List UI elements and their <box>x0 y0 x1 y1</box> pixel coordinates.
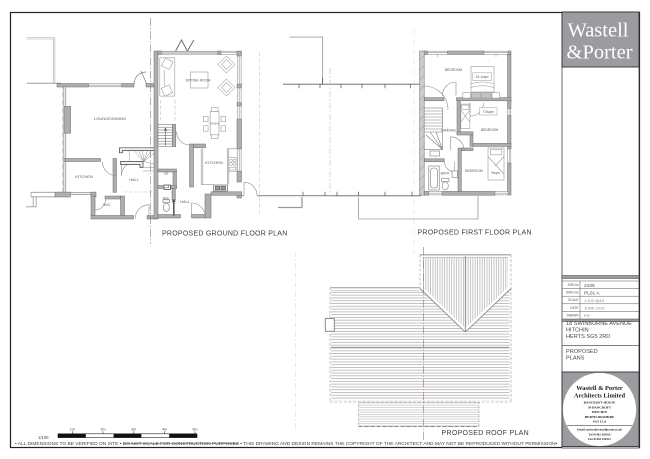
svg-text:LANDING: LANDING <box>441 129 456 133</box>
svg-text:PLANS: PLANS <box>566 356 585 362</box>
svg-text:Fax 01462 420421: Fax 01462 420421 <box>588 437 611 441</box>
svg-text:HERTS SG5 2RD: HERTS SG5 2RD <box>566 334 610 340</box>
svg-text:Wastell & Porter: Wastell & Porter <box>576 385 623 392</box>
svg-text:BATH: BATH <box>441 172 450 176</box>
svg-text:JOB No: JOB No <box>567 283 578 287</box>
svg-text:LOUNGE/DINING: LOUNGE/DINING <box>94 116 126 121</box>
svg-text:7.5sqm: 7.5sqm <box>483 110 494 114</box>
svg-text:PROPOSED FIRST FLOOR PLAN: PROPOSED FIRST FLOOR PLAN <box>418 229 532 236</box>
svg-text:• ALL DIMENSIONS TO BE VERIFIE: • ALL DIMENSIONS TO BE VERIFIED ON SITE … <box>15 441 558 447</box>
svg-text:18 SWINBURNE AVENUE: 18 SWINBURNE AVENUE <box>566 321 632 327</box>
svg-text:PROPOSED: PROPOSED <box>566 349 598 355</box>
svg-text:2105: 2105 <box>584 283 595 289</box>
svg-text:4m: 4m <box>162 428 167 432</box>
svg-text:&Porter: &Porter <box>567 42 633 64</box>
svg-text:1/100: 1/100 <box>38 435 49 440</box>
svg-text:PL01 A: PL01 A <box>584 291 600 297</box>
svg-text:DATE: DATE <box>570 306 578 310</box>
svg-text:HITCHIN: HITCHIN <box>566 328 589 334</box>
svg-text:PH: PH <box>584 313 590 318</box>
svg-text:Email contact@wastellporter.co: Email contact@wastellporter.co.uk <box>577 428 622 432</box>
svg-text:BEDROOM: BEDROOM <box>445 68 463 72</box>
svg-text:Tel 01462 420420: Tel 01462 420420 <box>589 432 611 436</box>
svg-text:SCALE: SCALE <box>568 298 578 302</box>
svg-text:Architects Limited: Architects Limited <box>574 393 626 400</box>
svg-text:BEDROOM: BEDROOM <box>481 128 499 132</box>
svg-text:DINING: DINING <box>209 122 220 126</box>
svg-text:DWG No: DWG No <box>566 291 579 295</box>
svg-text:DRAWN: DRAWN <box>567 313 580 317</box>
svg-text:KITCHEN: KITCHEN <box>75 174 93 179</box>
svg-text:JUNE 2019: JUNE 2019 <box>584 305 605 310</box>
svg-text:HITCHIN: HITCHIN <box>592 410 608 414</box>
svg-text:PROPOSED GROUND FLOOR PLAN: PROPOSED GROUND FLOOR PLAN <box>162 230 288 237</box>
svg-text:5m: 5m <box>193 428 198 432</box>
svg-text:1m: 1m <box>70 428 75 432</box>
svg-text:34 BANCROFT: 34 BANCROFT <box>588 405 612 409</box>
svg-text:Wastell: Wastell <box>568 20 629 42</box>
svg-text:2m: 2m <box>101 428 106 432</box>
svg-text:1:100 @A3: 1:100 @A3 <box>584 298 605 303</box>
svg-text:BEDROOM: BEDROOM <box>465 169 483 173</box>
svg-text:BANCROFT HOUSE: BANCROFT HOUSE <box>584 401 616 405</box>
svg-text:9sqm: 9sqm <box>492 171 500 175</box>
svg-text:KITCHEN: KITCHEN <box>205 160 223 165</box>
svg-text:HALL: HALL <box>129 178 139 182</box>
svg-text:W/C: W/C <box>103 203 111 207</box>
svg-text:HERTFORDSHIRE: HERTFORDSHIRE <box>585 415 615 419</box>
svg-text:3m: 3m <box>131 428 136 432</box>
svg-text:SG5 1LA: SG5 1LA <box>593 420 607 424</box>
svg-text:PROPOSED ROOF PLAN: PROPOSED ROOF PLAN <box>442 430 529 437</box>
svg-text:SITTING ROOM: SITTING ROOM <box>186 79 211 83</box>
svg-text:15.1sqm: 15.1sqm <box>475 75 488 79</box>
svg-text:HALL: HALL <box>180 200 190 204</box>
svg-text:ST: ST <box>164 172 168 176</box>
